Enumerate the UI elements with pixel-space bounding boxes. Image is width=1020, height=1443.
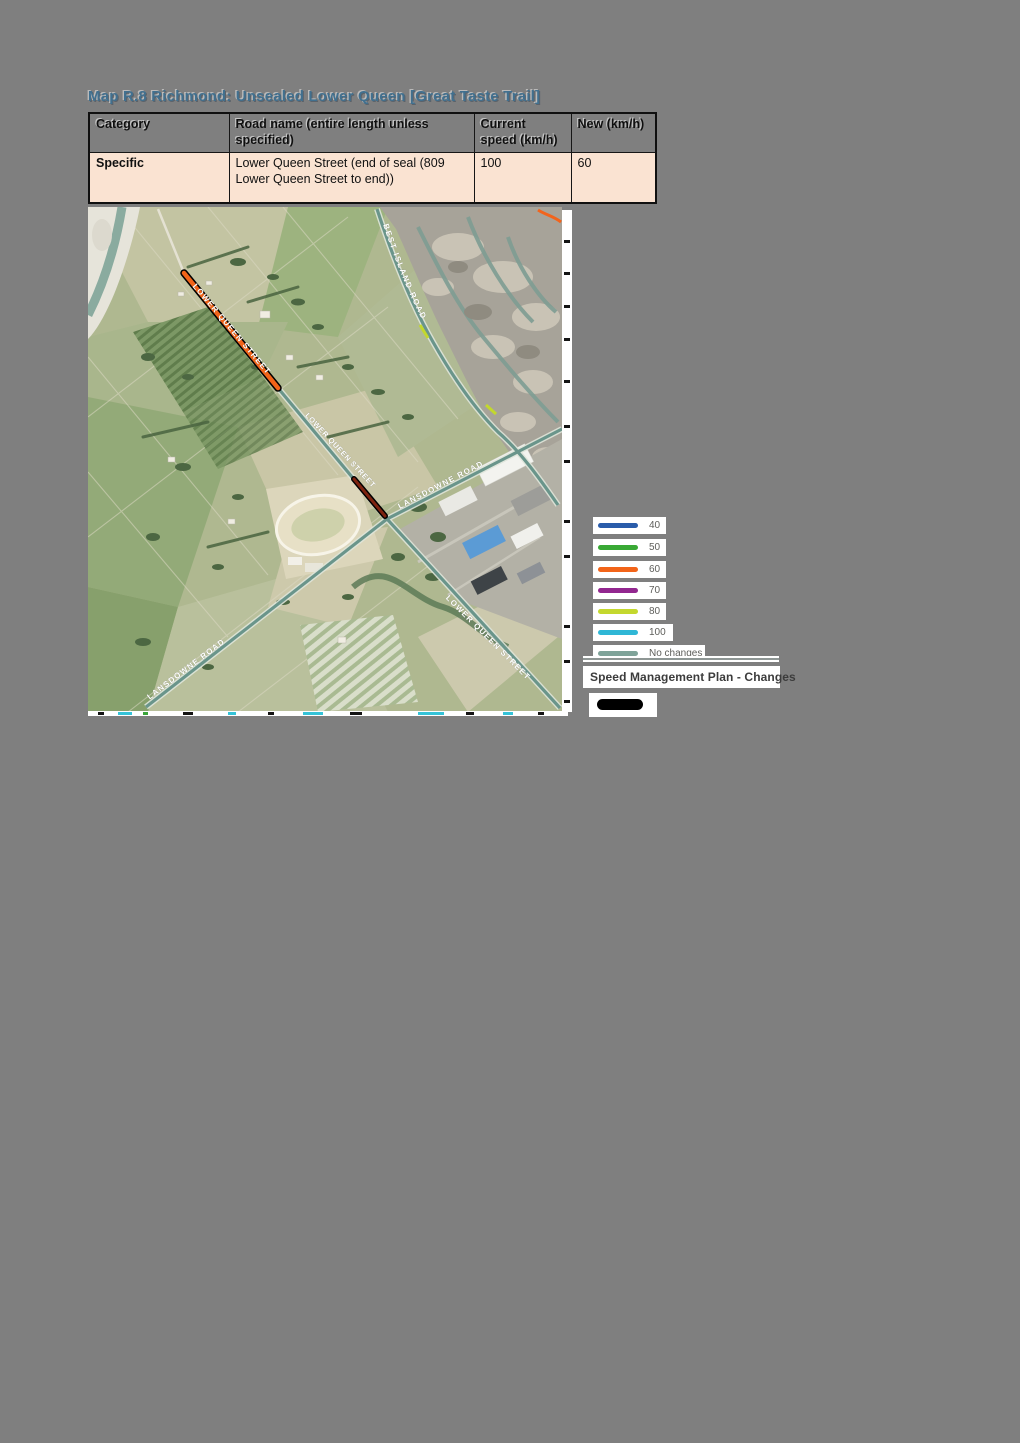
document-page: Map R.8 Richmond: Unsealed Lower Queen [… xyxy=(0,0,1020,1443)
legend-line-100 xyxy=(598,630,638,635)
legend-item-80: 80 xyxy=(593,603,666,620)
header-new-speed: New (km/h) xyxy=(571,113,656,153)
cell-category: Specific xyxy=(89,153,229,204)
legend-change-symbol xyxy=(597,699,643,710)
legend-item-40: 40 xyxy=(593,517,666,534)
legend-separator xyxy=(583,656,779,662)
legend-label-40: 40 xyxy=(649,520,660,531)
legend-label-100: 100 xyxy=(649,627,666,638)
header-road-name: Road name (entire length unless specifie… xyxy=(229,113,474,153)
legend-line-50 xyxy=(598,545,638,550)
table-header-row: Category Road name (entire length unless… xyxy=(89,113,656,153)
legend-label-60: 60 xyxy=(649,564,660,575)
map-edge-artifact-bottom xyxy=(88,711,568,716)
header-current-speed: Current speed (km/h) xyxy=(474,113,571,153)
legend-label-70: 70 xyxy=(649,585,660,596)
cell-current-speed: 100 xyxy=(474,153,571,204)
legend-line-70 xyxy=(598,588,638,593)
aerial-map: LOWER QUEEN STREET LOWER QUEEN STREET LO… xyxy=(88,207,562,712)
legend-line-40 xyxy=(598,523,638,528)
legend-symbol-patch xyxy=(589,693,657,717)
legend-line-80 xyxy=(598,609,638,614)
legend-title: Speed Management Plan - Changes xyxy=(583,666,780,688)
legend-label-80: 80 xyxy=(649,606,660,617)
cell-road-name: Lower Queen Street (end of seal (809 Low… xyxy=(229,153,474,204)
aerial-map-canvas: LOWER QUEEN STREET LOWER QUEEN STREET LO… xyxy=(88,207,562,712)
map-edge-artifact-right xyxy=(562,210,572,712)
header-category: Category xyxy=(89,113,229,153)
legend-item-50: 50 xyxy=(593,539,666,556)
table-row: Specific Lower Queen Street (end of seal… xyxy=(89,153,656,204)
legend-item-100: 100 xyxy=(593,624,673,641)
speed-change-table: Category Road name (entire length unless… xyxy=(88,112,657,204)
legend-item-70: 70 xyxy=(593,582,666,599)
legend-line-60 xyxy=(598,567,638,572)
map-title: Map R.8 Richmond: Unsealed Lower Queen [… xyxy=(88,88,648,105)
legend-item-60: 60 xyxy=(593,561,666,578)
legend-label-50: 50 xyxy=(649,542,660,553)
cell-new-speed: 60 xyxy=(571,153,656,204)
